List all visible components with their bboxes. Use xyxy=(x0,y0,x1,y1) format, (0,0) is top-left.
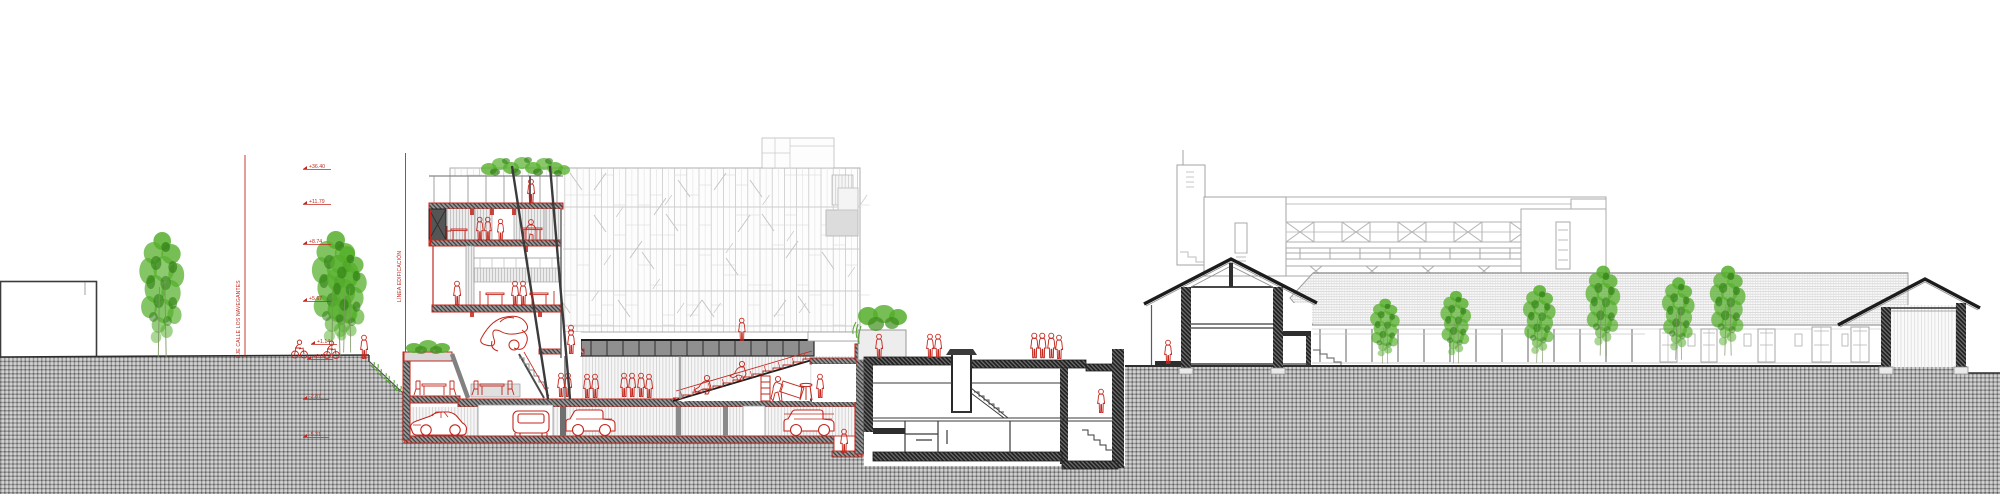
svg-text:+36.40: +36.40 xyxy=(309,164,325,170)
svg-text:EJE CALLE LOS NAVEGANTES: EJE CALLE LOS NAVEGANTES xyxy=(236,280,242,358)
svg-text:-2.87: -2.87 xyxy=(309,394,321,400)
svg-text:+8.74: +8.74 xyxy=(309,239,322,245)
svg-text:-5.31: -5.31 xyxy=(309,432,321,438)
svg-text:+1.14: +1.14 xyxy=(317,339,330,345)
svg-text:+5.67: +5.67 xyxy=(309,296,322,302)
svg-text:+11.79: +11.79 xyxy=(309,199,325,205)
svg-text:LÍNEA EDIFICACIÓN: LÍNEA EDIFICACIÓN xyxy=(396,251,403,302)
